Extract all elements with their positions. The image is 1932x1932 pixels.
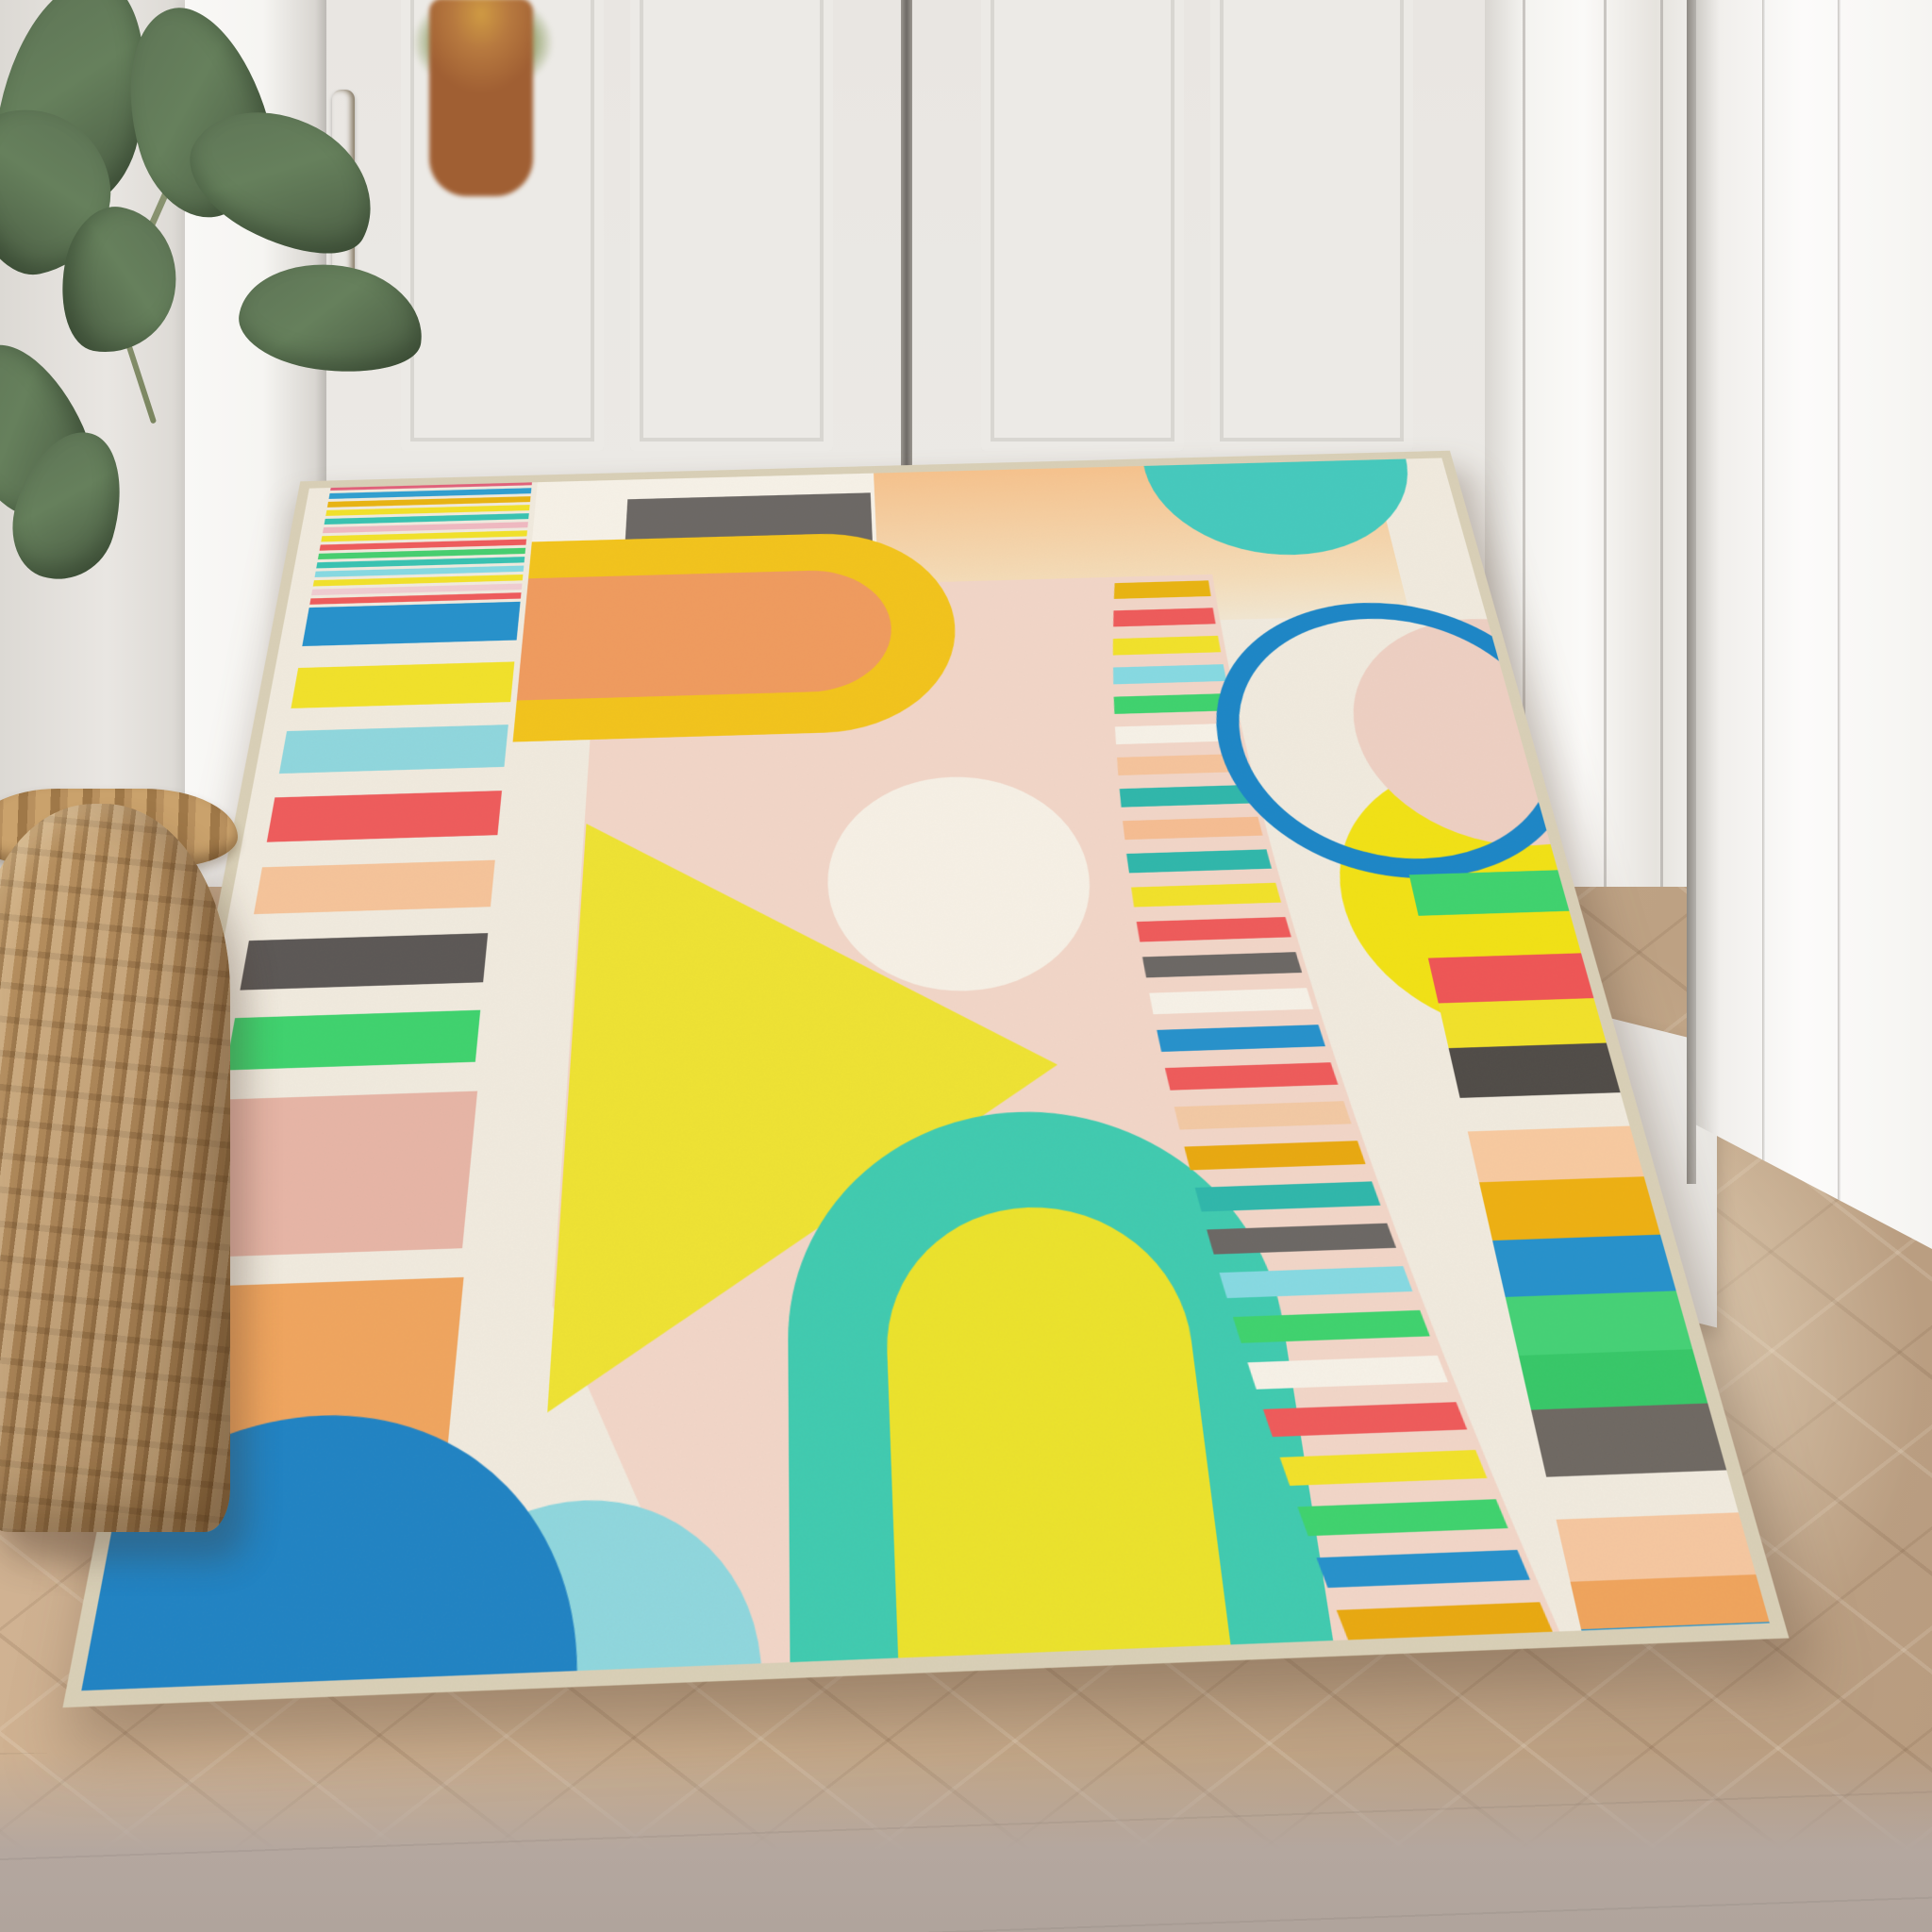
foreground-floor bbox=[0, 1753, 1932, 1932]
window-glass-view bbox=[1222, 0, 1402, 438]
open-door-seam bbox=[1687, 0, 1696, 1184]
door-window-pane bbox=[1210, 0, 1413, 451]
door-window-pane bbox=[630, 0, 833, 451]
window-glass-view bbox=[992, 0, 1173, 438]
door-panel-line bbox=[1762, 0, 1766, 1250]
plant-leaf bbox=[233, 253, 430, 383]
open-door-panel bbox=[1696, 0, 1932, 1250]
potted-plant-leaves bbox=[0, 0, 494, 694]
wicker-basket bbox=[0, 804, 230, 1532]
entryway-scene bbox=[0, 0, 1932, 1932]
door-window-pane bbox=[981, 0, 1184, 451]
window-glass-view bbox=[641, 0, 822, 438]
door-panel-line bbox=[1838, 0, 1841, 1250]
